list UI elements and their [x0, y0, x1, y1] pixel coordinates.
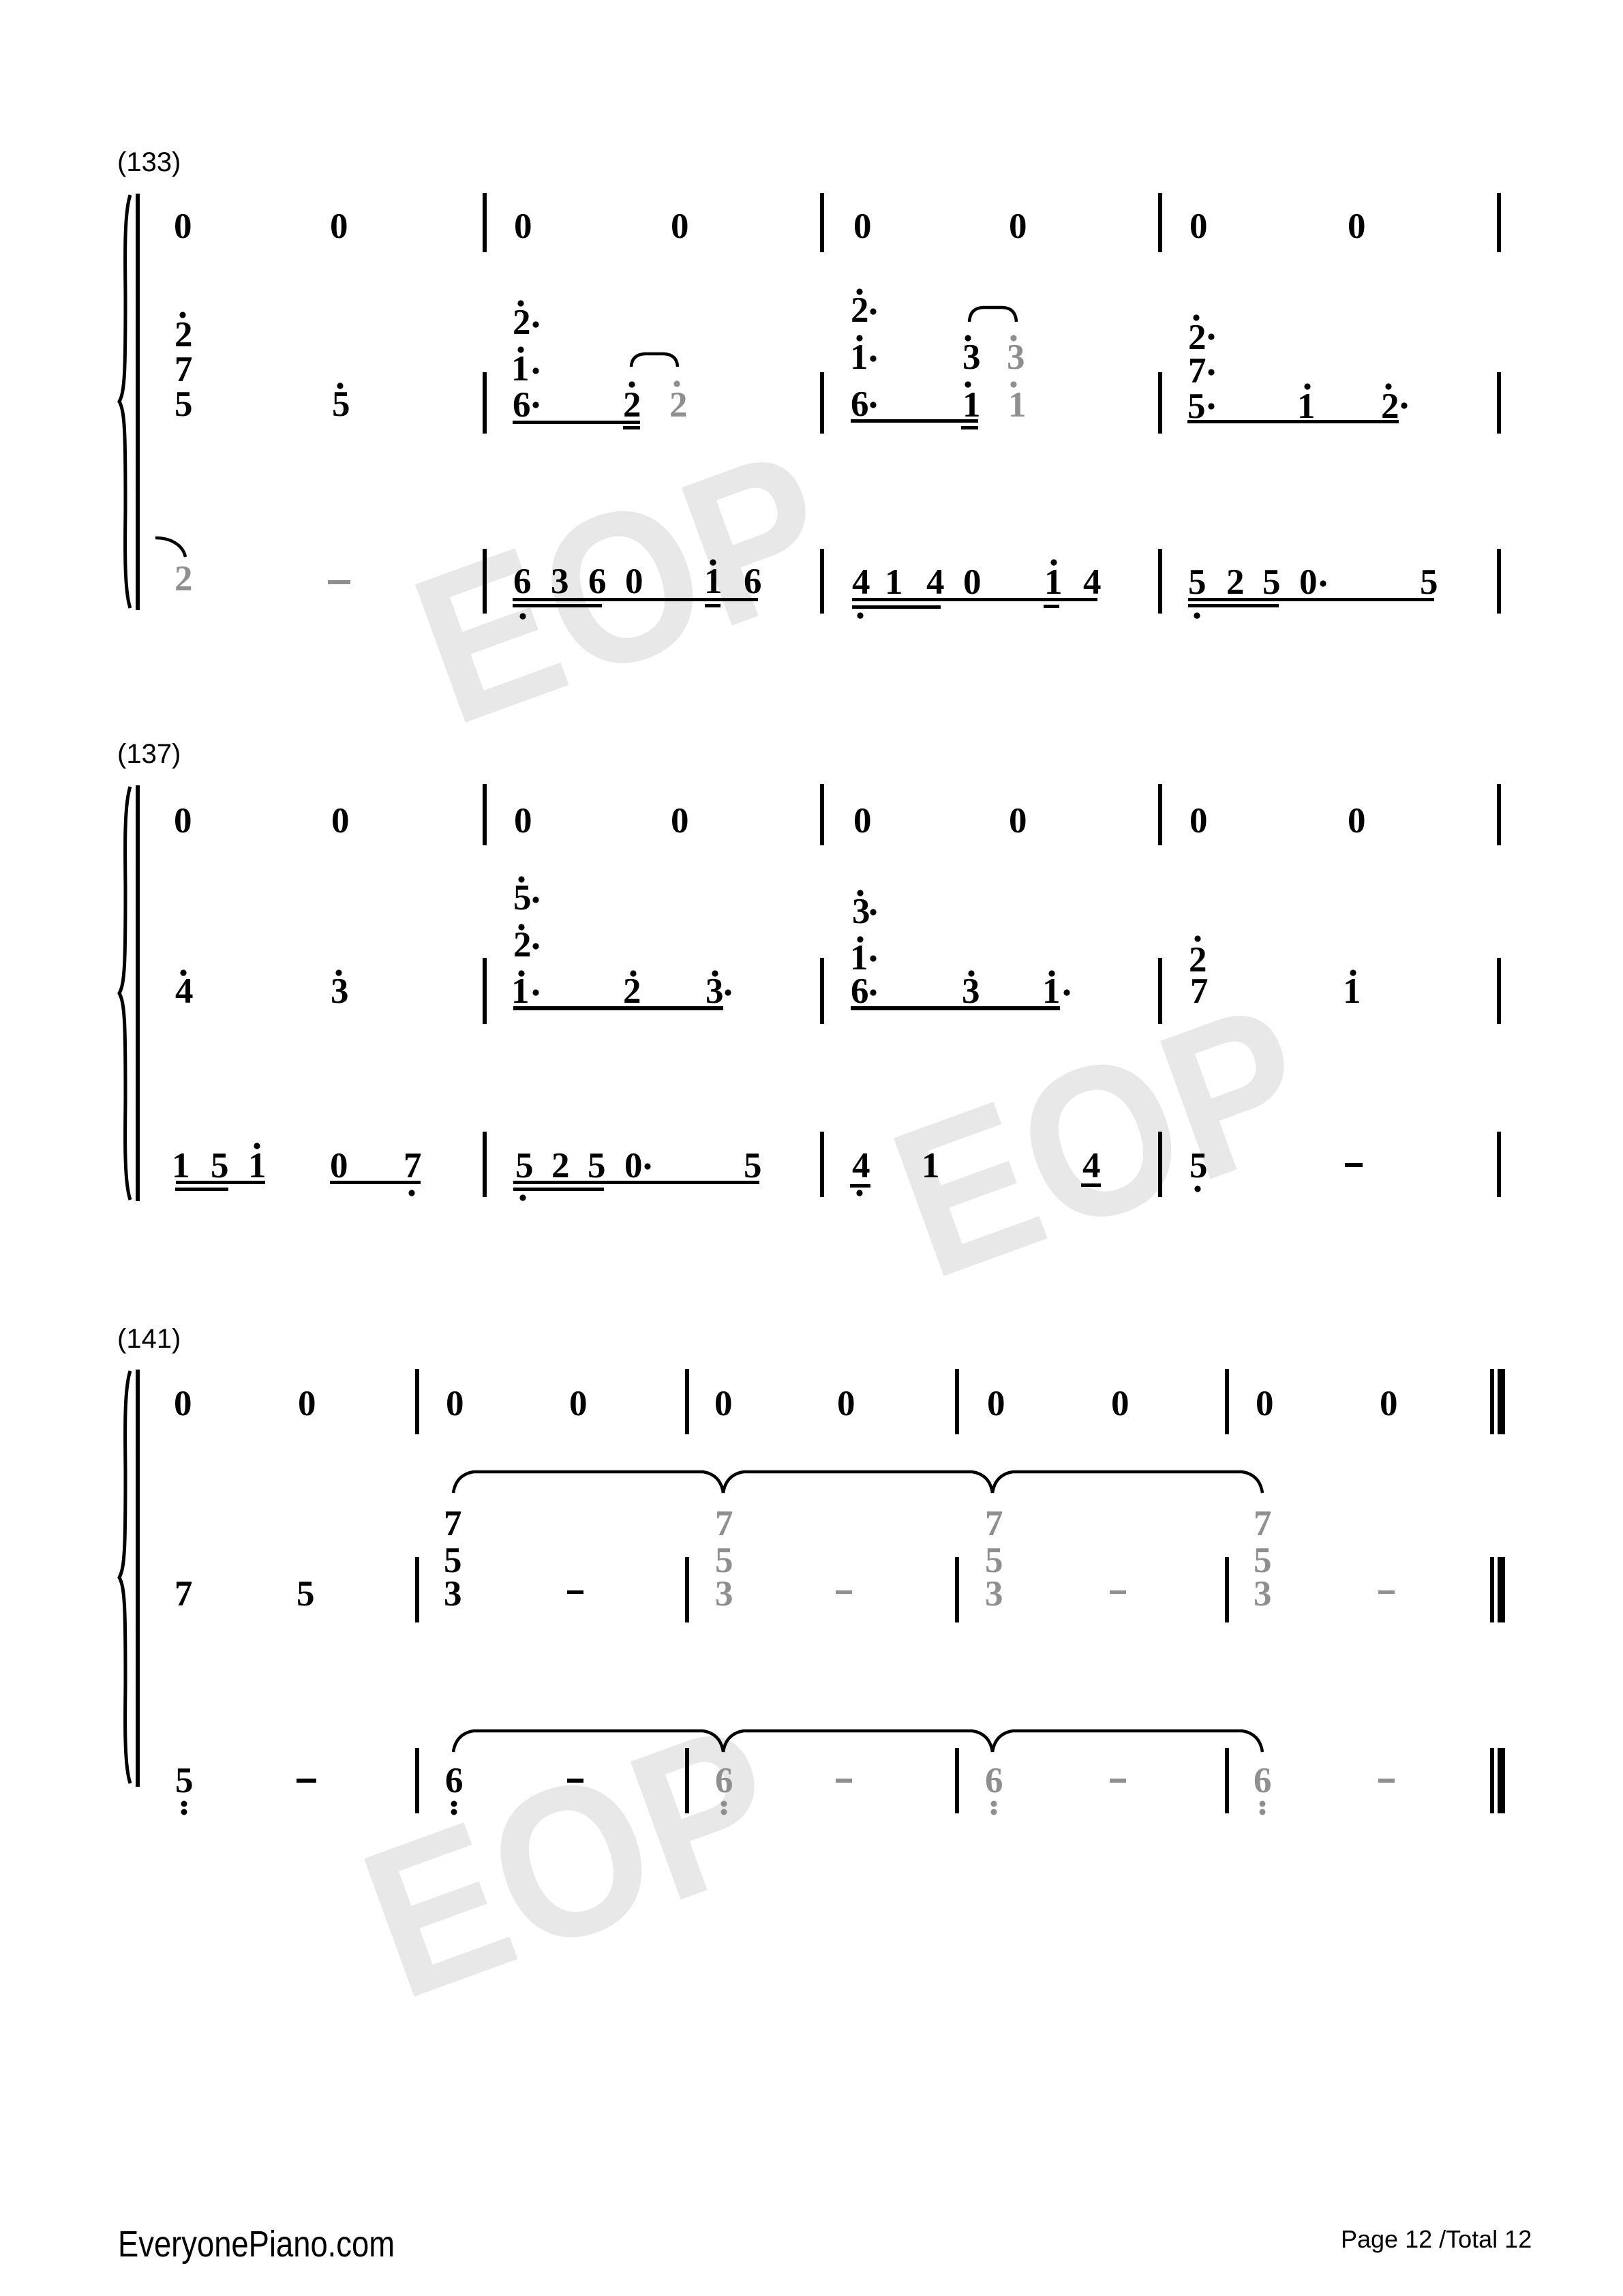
svg-text:3: 3 — [1254, 1574, 1272, 1614]
svg-text:2: 2 — [551, 1146, 570, 1185]
svg-text:7: 7 — [1254, 1504, 1272, 1543]
svg-text:0: 0 — [331, 801, 350, 841]
svg-text:EveryonePiano.com: EveryonePiano.com — [118, 2224, 395, 2265]
svg-text:6: 6 — [851, 384, 869, 424]
svg-text:5: 5 — [1420, 562, 1438, 602]
svg-text:(141): (141) — [117, 1324, 181, 1354]
svg-text:0: 0 — [1009, 801, 1027, 841]
svg-text:4: 4 — [1082, 1146, 1101, 1185]
svg-text:3: 3 — [706, 971, 724, 1011]
svg-text:1: 1 — [248, 1146, 267, 1185]
svg-text:0: 0 — [963, 562, 982, 602]
svg-text:3: 3 — [331, 971, 349, 1011]
svg-text:0: 0 — [837, 1384, 855, 1423]
svg-text:3: 3 — [852, 892, 870, 931]
svg-text:0: 0 — [298, 1384, 316, 1423]
svg-text:0: 0 — [1009, 207, 1027, 246]
svg-text:(137): (137) — [117, 739, 181, 769]
svg-text:4: 4 — [852, 562, 870, 602]
svg-text:0: 0 — [987, 1384, 1005, 1423]
svg-text:5: 5 — [211, 1146, 229, 1185]
svg-text:5: 5 — [744, 1146, 762, 1185]
svg-text:5: 5 — [588, 1146, 606, 1185]
svg-text:2: 2 — [513, 303, 531, 342]
svg-text:1: 1 — [885, 562, 903, 602]
svg-text:0: 0 — [174, 801, 192, 841]
svg-text:2: 2 — [175, 559, 193, 599]
svg-text:0: 0 — [1256, 1384, 1274, 1423]
svg-text:6: 6 — [715, 1761, 733, 1800]
svg-text:2: 2 — [669, 385, 688, 425]
svg-text:2: 2 — [623, 385, 641, 425]
svg-text:0: 0 — [671, 801, 689, 841]
svg-text:0: 0 — [446, 1384, 464, 1423]
svg-text:4: 4 — [926, 562, 945, 602]
svg-text:0: 0 — [625, 562, 643, 601]
svg-text:0: 0 — [330, 207, 348, 246]
svg-text:1: 1 — [1044, 562, 1063, 602]
svg-text:1: 1 — [1343, 971, 1361, 1011]
svg-text:2: 2 — [623, 971, 641, 1011]
svg-text:4: 4 — [175, 971, 194, 1011]
svg-text:2: 2 — [1226, 562, 1245, 602]
svg-text:1: 1 — [511, 971, 530, 1011]
svg-text:7: 7 — [175, 350, 193, 389]
svg-text:6: 6 — [445, 1761, 464, 1800]
svg-text:5: 5 — [332, 384, 350, 424]
svg-text:5: 5 — [1262, 562, 1281, 602]
svg-text:0: 0 — [174, 1384, 192, 1423]
svg-text:0: 0 — [569, 1384, 588, 1423]
svg-text:0: 0 — [174, 207, 192, 246]
svg-text:1: 1 — [704, 562, 723, 601]
svg-text:4: 4 — [852, 1146, 870, 1185]
svg-text:3: 3 — [962, 971, 980, 1011]
svg-text:5: 5 — [175, 384, 193, 424]
svg-text:0: 0 — [853, 207, 872, 246]
svg-text:0: 0 — [1380, 1384, 1398, 1423]
svg-text:5: 5 — [1188, 562, 1207, 602]
svg-text:1: 1 — [922, 1146, 940, 1185]
svg-text:0: 0 — [514, 207, 532, 246]
svg-text:0: 0 — [853, 801, 872, 841]
svg-text:6: 6 — [513, 562, 532, 601]
svg-text:0: 0 — [1189, 207, 1208, 246]
svg-text:7: 7 — [715, 1504, 733, 1543]
svg-text:0: 0 — [714, 1384, 733, 1423]
svg-text:1: 1 — [850, 337, 868, 377]
svg-text:6: 6 — [851, 971, 869, 1011]
svg-text:0: 0 — [330, 1146, 348, 1185]
svg-text:Page 12 /Total 12: Page 12 /Total 12 — [1341, 2225, 1532, 2253]
svg-text:6: 6 — [1254, 1761, 1272, 1800]
svg-text:5: 5 — [513, 878, 532, 918]
svg-text:1: 1 — [962, 385, 981, 425]
svg-text:3: 3 — [1007, 337, 1025, 377]
svg-text:7: 7 — [444, 1504, 462, 1543]
svg-text:0: 0 — [1189, 801, 1208, 841]
svg-text:(133): (133) — [117, 147, 181, 177]
svg-text:2: 2 — [175, 315, 193, 354]
svg-text:3: 3 — [715, 1574, 733, 1614]
svg-text:1: 1 — [1008, 385, 1027, 425]
svg-text:1: 1 — [511, 349, 530, 389]
svg-text:0: 0 — [514, 801, 532, 841]
svg-text:7: 7 — [1188, 351, 1207, 391]
svg-text:0: 0 — [1348, 801, 1366, 841]
svg-text:0: 0 — [671, 207, 689, 246]
svg-text:0: 0 — [1299, 562, 1318, 602]
svg-text:6: 6 — [744, 562, 762, 601]
svg-text:7: 7 — [1190, 971, 1209, 1011]
svg-text:0: 0 — [1111, 1384, 1129, 1423]
svg-text:3: 3 — [985, 1574, 1003, 1614]
svg-text:1: 1 — [172, 1146, 190, 1185]
svg-text:7: 7 — [404, 1146, 422, 1185]
svg-text:2: 2 — [513, 925, 532, 965]
svg-text:3: 3 — [962, 337, 981, 377]
svg-text:1: 1 — [1042, 971, 1061, 1011]
svg-text:5: 5 — [297, 1574, 315, 1614]
svg-text:3: 3 — [551, 562, 569, 601]
svg-text:5: 5 — [1189, 1146, 1208, 1185]
svg-text:6: 6 — [985, 1761, 1003, 1800]
svg-text:4: 4 — [1083, 562, 1102, 602]
svg-text:6: 6 — [588, 562, 607, 601]
svg-text:3: 3 — [444, 1574, 462, 1614]
svg-text:5: 5 — [515, 1146, 534, 1185]
svg-text:5: 5 — [175, 1761, 194, 1800]
svg-text:7: 7 — [985, 1504, 1003, 1543]
svg-text:0: 0 — [624, 1146, 643, 1185]
svg-text:0: 0 — [1348, 207, 1366, 246]
svg-text:2: 2 — [851, 290, 869, 330]
svg-text:7: 7 — [175, 1574, 193, 1614]
svg-text:6: 6 — [513, 385, 531, 425]
